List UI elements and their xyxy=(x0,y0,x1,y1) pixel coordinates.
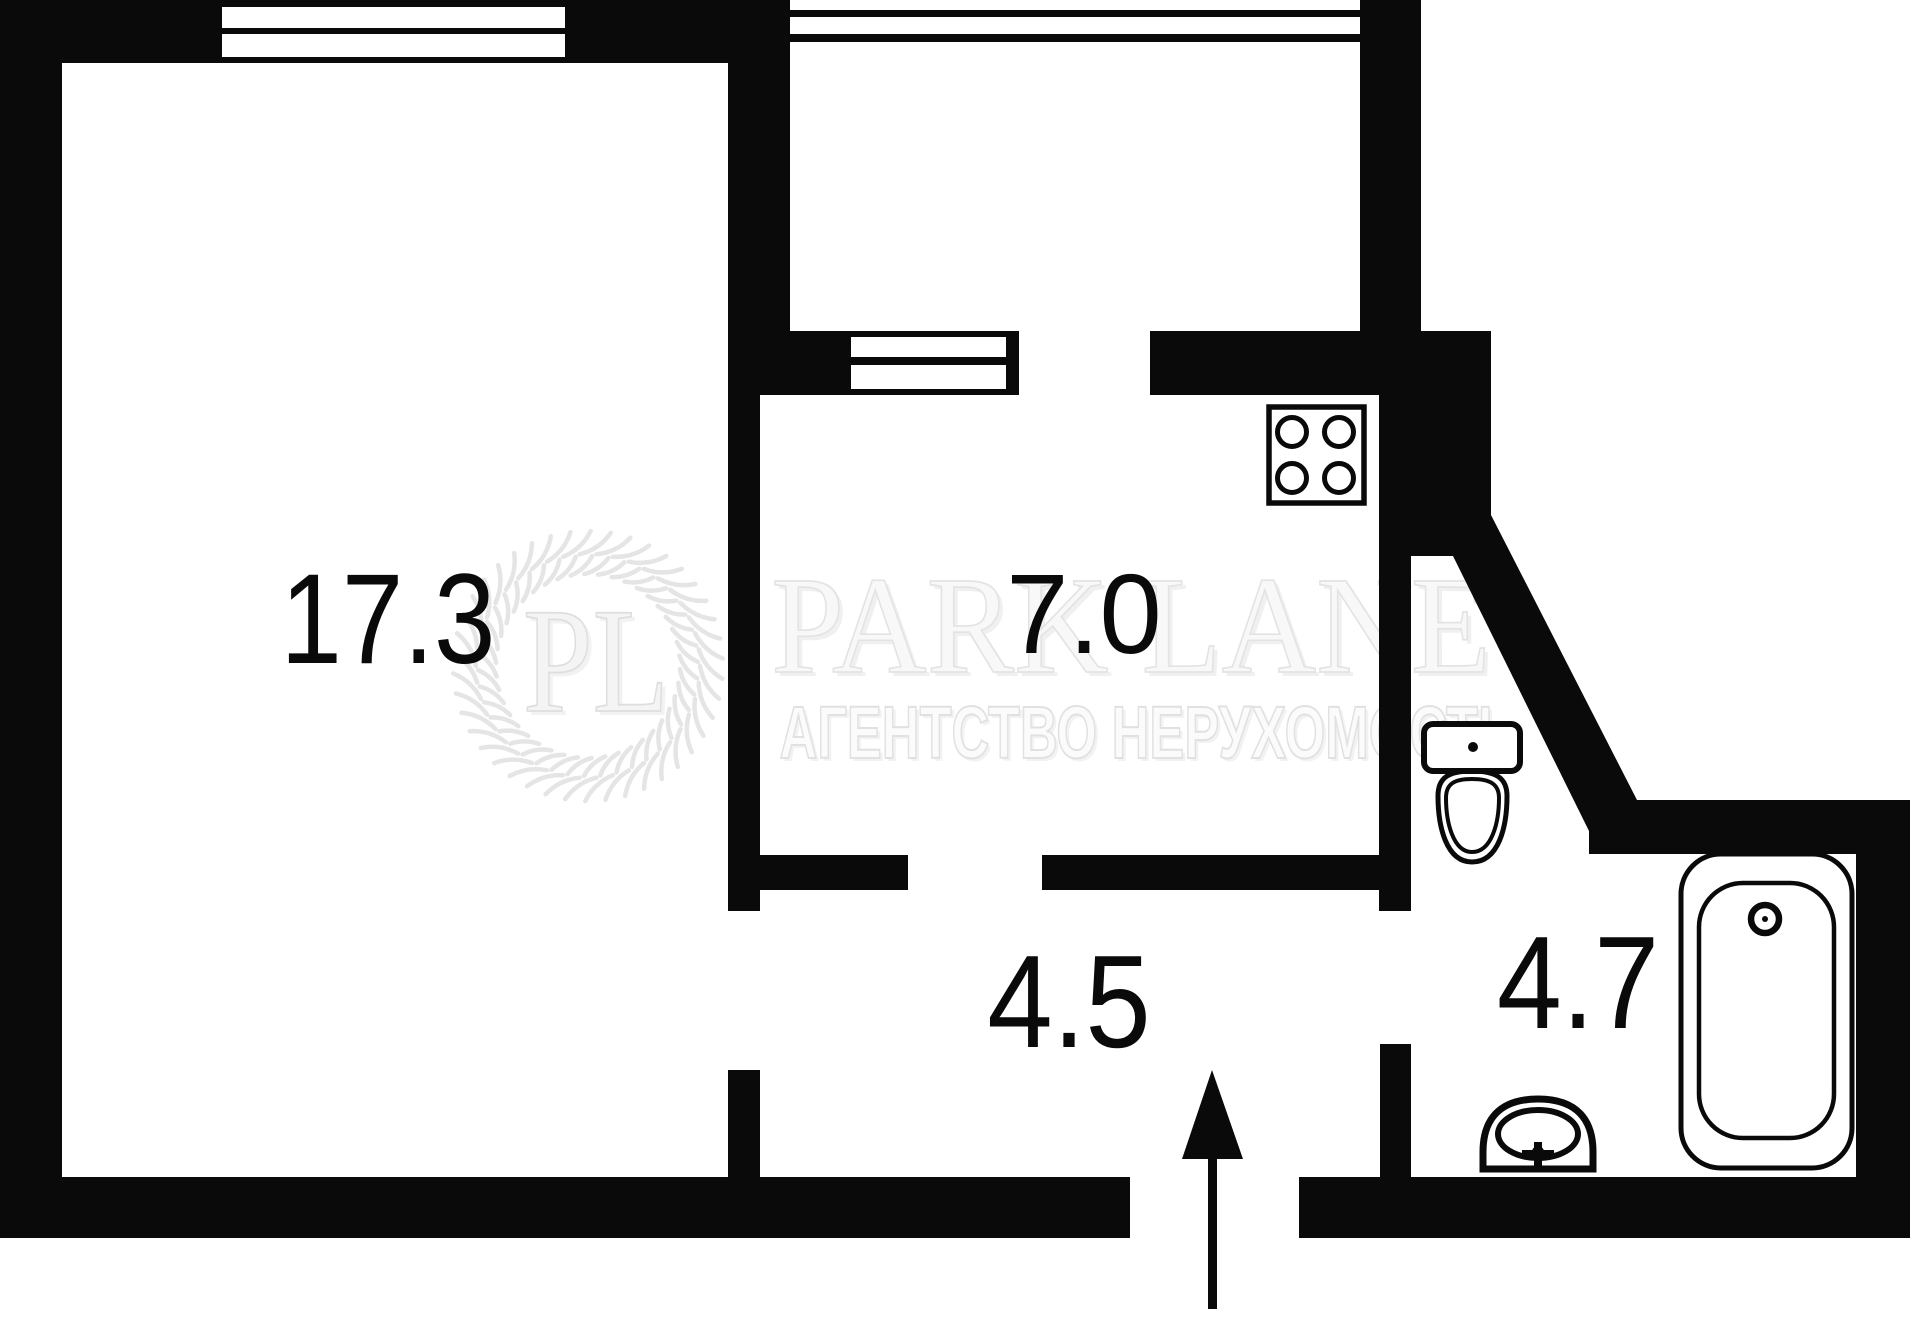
svg-text:17.3: 17.3 xyxy=(281,548,496,690)
svg-text:4.7: 4.7 xyxy=(1497,909,1659,1056)
svg-text:7.0: 7.0 xyxy=(1006,550,1162,677)
svg-text:4.5: 4.5 xyxy=(987,929,1150,1076)
